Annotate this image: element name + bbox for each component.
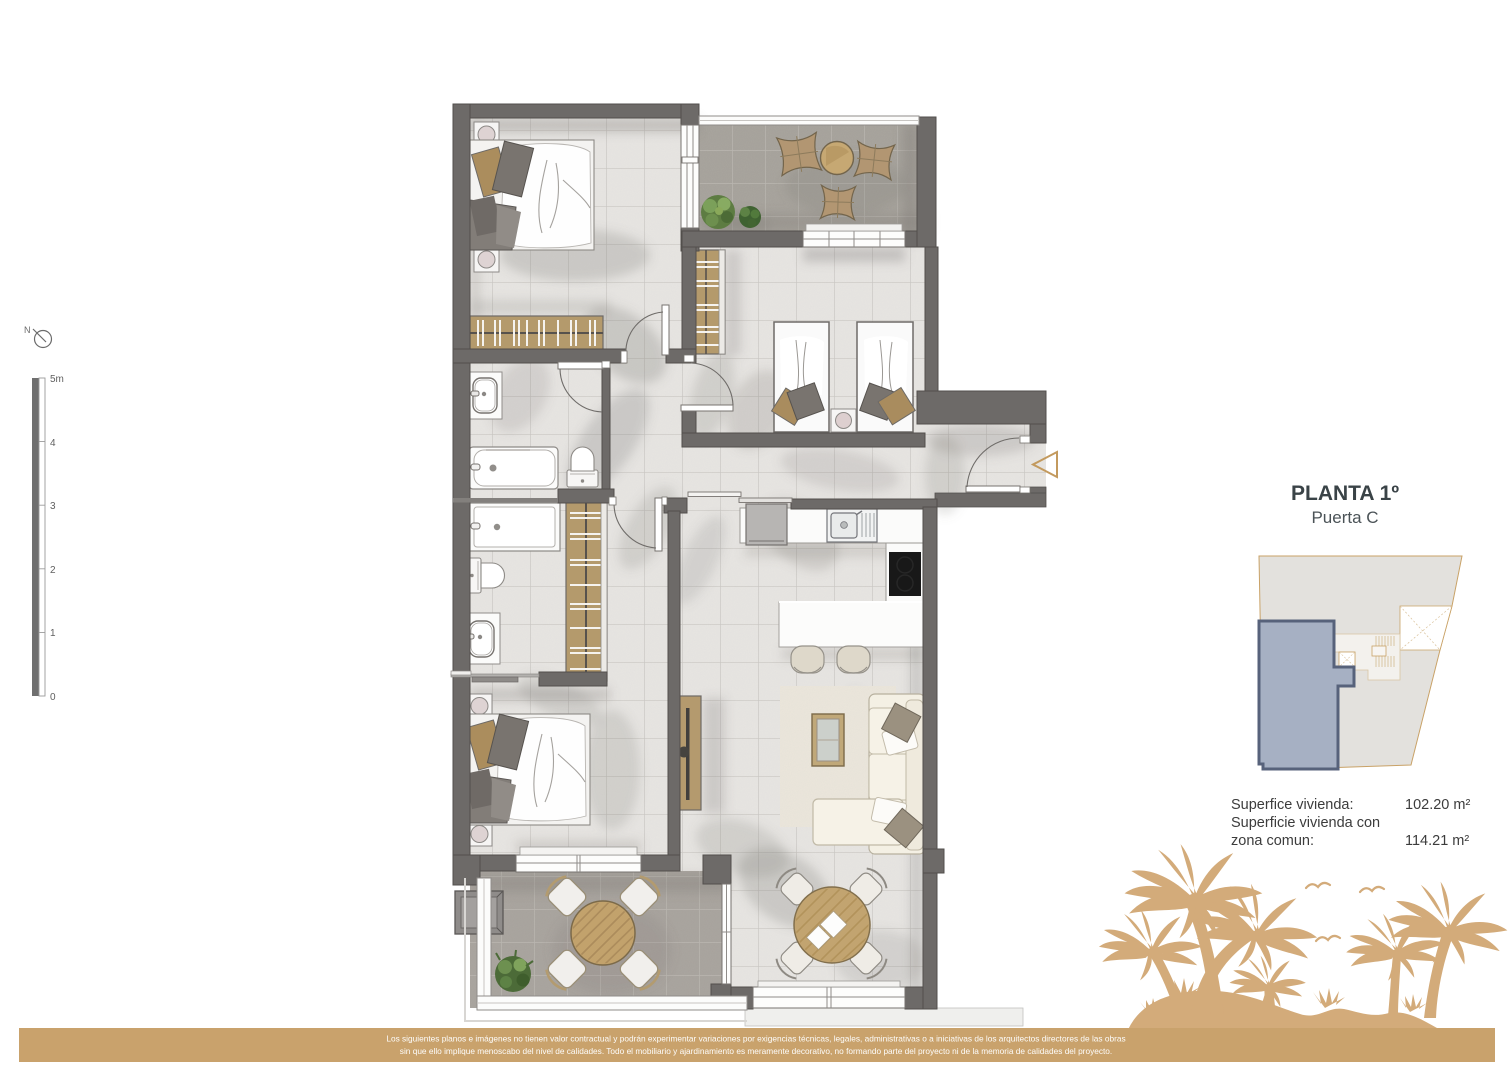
svg-text:5m: 5m <box>50 374 64 385</box>
svg-text:sin que ello implique menoscab: sin que ello implique menoscabo del nive… <box>400 1046 1112 1056</box>
svg-text:3: 3 <box>50 501 56 512</box>
svg-text:N: N <box>24 325 31 335</box>
svg-text:PLANTA 1º: PLANTA 1º <box>1291 482 1399 505</box>
svg-text:114.21 m²: 114.21 m² <box>1405 833 1469 849</box>
svg-text:4: 4 <box>50 438 56 449</box>
svg-text:Los siguientes planos e imágen: Los siguientes planos e imágenes no tien… <box>386 1034 1125 1044</box>
svg-text:zona comun:: zona comun: <box>1231 833 1314 849</box>
svg-text:0: 0 <box>50 692 56 703</box>
svg-text:Superficie vivienda con: Superficie vivienda con <box>1231 815 1380 831</box>
svg-text:Superfice vivienda:: Superfice vivienda: <box>1231 797 1354 813</box>
svg-text:102.20 m²: 102.20 m² <box>1405 797 1470 813</box>
svg-text:2: 2 <box>50 565 56 576</box>
svg-text:1: 1 <box>50 628 56 639</box>
svg-text:Puerta C: Puerta C <box>1311 508 1378 527</box>
